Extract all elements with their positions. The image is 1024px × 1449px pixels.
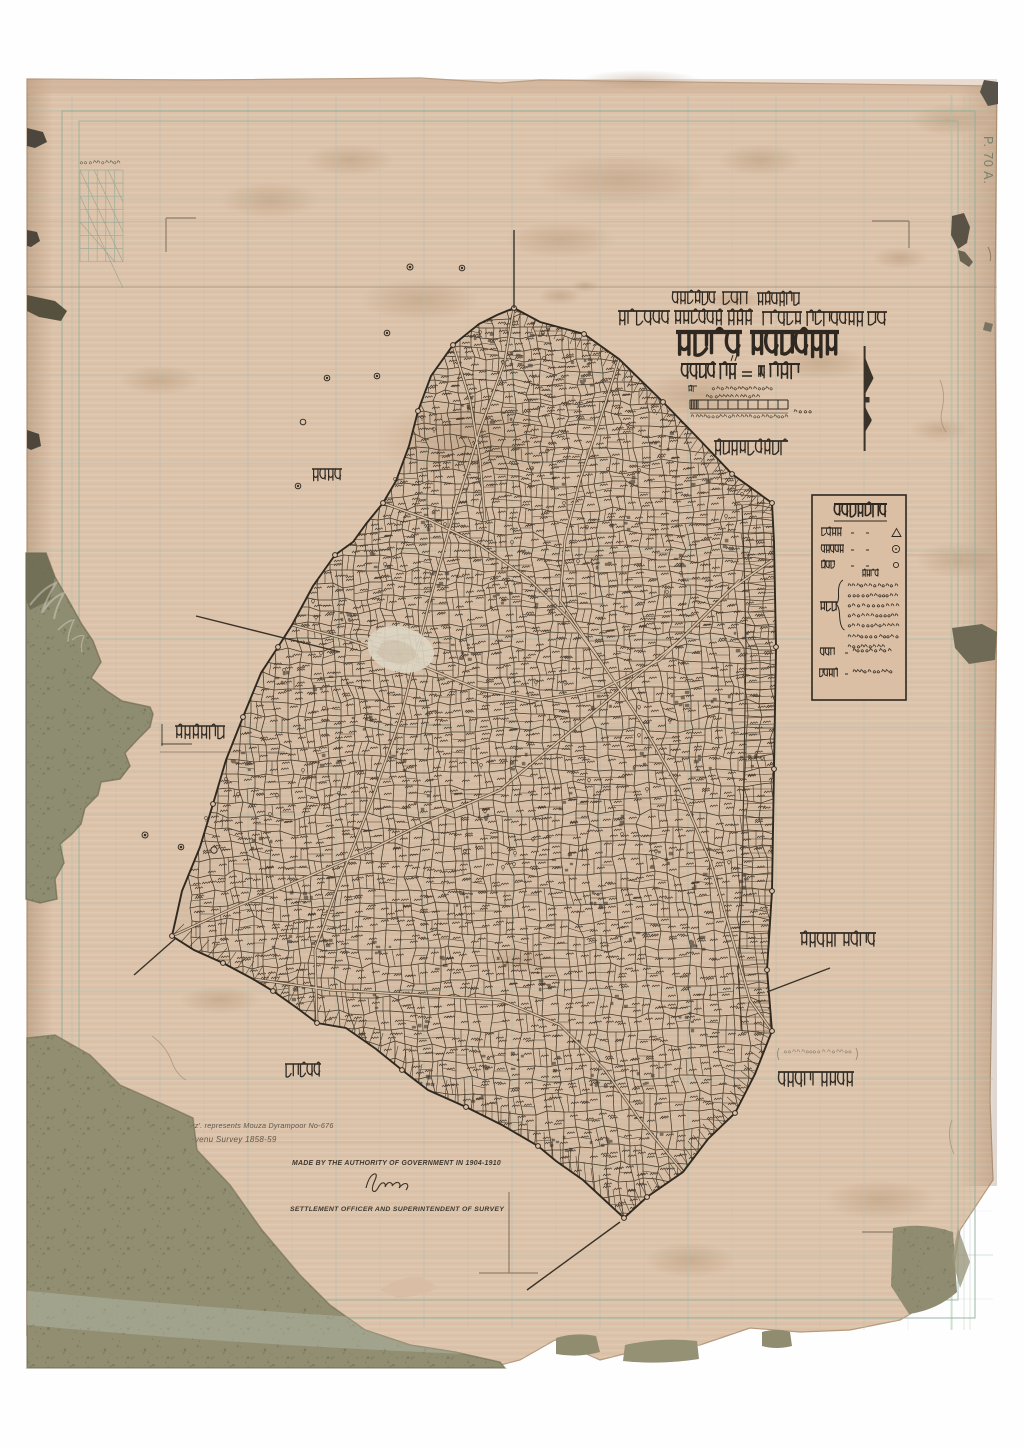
svg-text:SETTLEMENT OFFICER AND SUPERIN: SETTLEMENT OFFICER AND SUPERINTENDENT OF… xyxy=(290,1206,505,1213)
svg-text:P. 70 A.: P. 70 A. xyxy=(981,136,995,185)
svg-text:MADE BY THE AUTHORITY OF GOVER: MADE BY THE AUTHORITY OF GOVERNMENT IN 1… xyxy=(292,1160,501,1167)
svg-text:mouz′. represents Mouza Dyram: mouz′. represents Mouza Dyrampoor No-676 xyxy=(180,1121,334,1130)
svg-text:Revenu Survey 1858-59: Revenu Survey 1858-59 xyxy=(184,1135,277,1144)
